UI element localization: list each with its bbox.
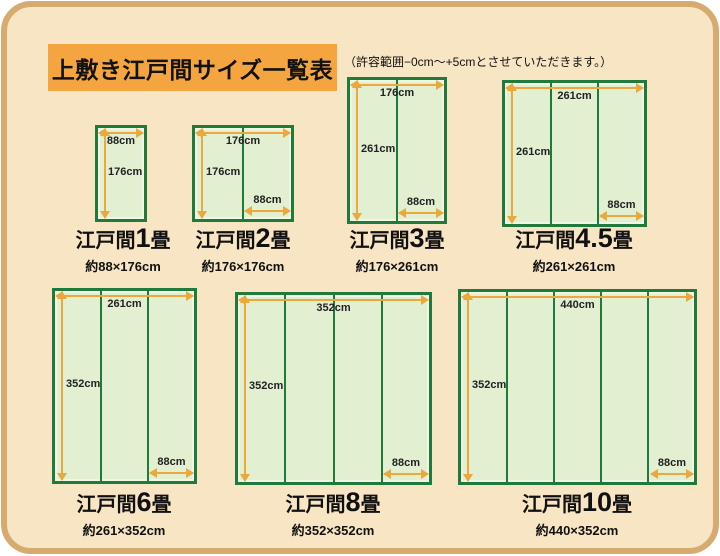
height-arrow: [244, 296, 246, 481]
dims-label: 約261×352cm: [14, 520, 234, 539]
mat-column: [553, 292, 600, 482]
mat-width-arrow: [399, 212, 443, 214]
width-arrow-label: 440cm: [458, 300, 697, 311]
caption-suffix: 畳: [425, 230, 445, 252]
width-arrow: [351, 84, 443, 86]
caption-number: 8: [345, 487, 360, 517]
mat-column: [381, 295, 429, 482]
size-chart-card: 上敷き江戸間サイズ一覧表 （許容範囲−0cm〜+5cmとさせていただきます。） …: [1, 1, 719, 554]
dims-label: 約261×261cm: [464, 256, 684, 275]
mat-width-arrow-label: 88cm: [600, 200, 643, 211]
mat-column: [333, 295, 381, 482]
caption: 江戸間10畳 約440×352cm: [467, 489, 687, 539]
caption: 江戸間8畳 約352×352cm: [223, 489, 443, 539]
dims-label: 約352×352cm: [223, 520, 443, 539]
width-arrow-label: 176cm: [347, 88, 447, 99]
width-arrow: [196, 132, 290, 134]
width-arrow-label: 261cm: [52, 299, 197, 310]
width-arrow: [462, 296, 693, 298]
height-arrow-label: 261cm: [361, 144, 395, 155]
mat-width-arrow: [150, 472, 193, 474]
page-title-badge: 上敷き江戸間サイズ一覧表: [48, 44, 337, 91]
height-arrow-label: 176cm: [108, 167, 142, 178]
mat-column: [100, 291, 147, 481]
mat-width-arrow-label: 88cm: [150, 457, 193, 468]
caption-prefix: 江戸間: [515, 230, 575, 252]
caption-title: 江戸間6畳: [14, 489, 234, 516]
width-arrow-label: 176cm: [192, 136, 294, 147]
mat-width-arrow-label: 88cm: [399, 197, 443, 208]
caption-prefix: 江戸間: [75, 230, 135, 252]
mat-column: [647, 292, 694, 482]
width-arrow-label: 261cm: [502, 91, 647, 102]
caption-prefix: 江戸間: [195, 230, 255, 252]
mat-column: [147, 291, 194, 481]
dims-label: 約440×352cm: [467, 520, 687, 539]
page: { "page": { "title": "上敷き江戸間サイズ一覧表", "no…: [0, 0, 720, 556]
width-arrow-label: 88cm: [95, 136, 147, 147]
diagram-edoma-8: 352cm 352cm 88cm: [235, 292, 432, 485]
mat-width-arrow-label: 88cm: [245, 195, 290, 206]
caption-suffix: 畳: [361, 494, 381, 516]
height-arrow: [104, 129, 106, 218]
mat-column: [506, 292, 553, 482]
height-arrow: [201, 129, 203, 218]
height-arrow-label: 261cm: [516, 147, 550, 158]
caption-title: 江戸間4.5畳: [464, 225, 684, 252]
height-arrow-label: 352cm: [472, 380, 506, 391]
mat-column: [284, 295, 332, 482]
tolerance-note: （許容範囲−0cm〜+5cmとさせていただきます。）: [344, 53, 612, 70]
mat-width-arrow-label: 88cm: [384, 458, 428, 469]
height-arrow: [61, 292, 63, 480]
mat-width-arrow-label: 88cm: [651, 458, 693, 469]
mat-width-arrow: [600, 215, 643, 217]
mat-column: [550, 83, 597, 224]
height-arrow: [511, 84, 513, 223]
page-title: 上敷き江戸間サイズ一覧表: [52, 51, 333, 85]
diagram-edoma-4-5: 261cm 261cm 88cm: [502, 80, 647, 227]
caption: 江戸間6畳 約261×352cm: [14, 489, 234, 539]
mat-width-arrow: [245, 210, 290, 212]
mat-column: [600, 292, 647, 482]
diagram-edoma-2: 176cm 176cm 88cm: [192, 125, 294, 222]
height-arrow-label: 352cm: [66, 379, 100, 390]
caption-number: 6: [136, 487, 151, 517]
caption: 江戸間4.5畳 約261×261cm: [464, 225, 684, 275]
caption-prefix: 江戸間: [285, 494, 345, 516]
diagram-edoma-6: 261cm 352cm 88cm: [52, 288, 197, 484]
caption-suffix: 畳: [612, 494, 632, 516]
caption-title: 江戸間10畳: [467, 489, 687, 516]
caption-prefix: 江戸間: [522, 494, 582, 516]
caption-number: 10: [582, 487, 612, 517]
height-arrow-label: 176cm: [206, 167, 240, 178]
width-arrow: [239, 299, 428, 301]
mat-width-arrow: [651, 473, 693, 475]
width-arrow: [56, 295, 193, 297]
diagram-edoma-10: 440cm 352cm 88cm: [458, 289, 697, 485]
diagram-edoma-3: 176cm 261cm 88cm: [347, 77, 447, 224]
caption-suffix: 畳: [152, 494, 172, 516]
caption-number: 2: [255, 223, 270, 253]
caption-suffix: 畳: [613, 230, 633, 252]
mat-width-arrow: [384, 473, 428, 475]
width-arrow: [506, 87, 643, 89]
width-arrow-label: 352cm: [235, 303, 432, 314]
caption-number: 4.5: [575, 223, 613, 253]
caption-prefix: 江戸間: [76, 494, 136, 516]
caption-title: 江戸間8畳: [223, 489, 443, 516]
caption-number: 3: [409, 223, 424, 253]
height-arrow: [467, 293, 469, 481]
height-arrow-label: 352cm: [249, 381, 283, 392]
height-arrow: [356, 81, 358, 220]
diagram-edoma-1: 88cm 176cm: [95, 125, 147, 222]
caption-prefix: 江戸間: [349, 230, 409, 252]
